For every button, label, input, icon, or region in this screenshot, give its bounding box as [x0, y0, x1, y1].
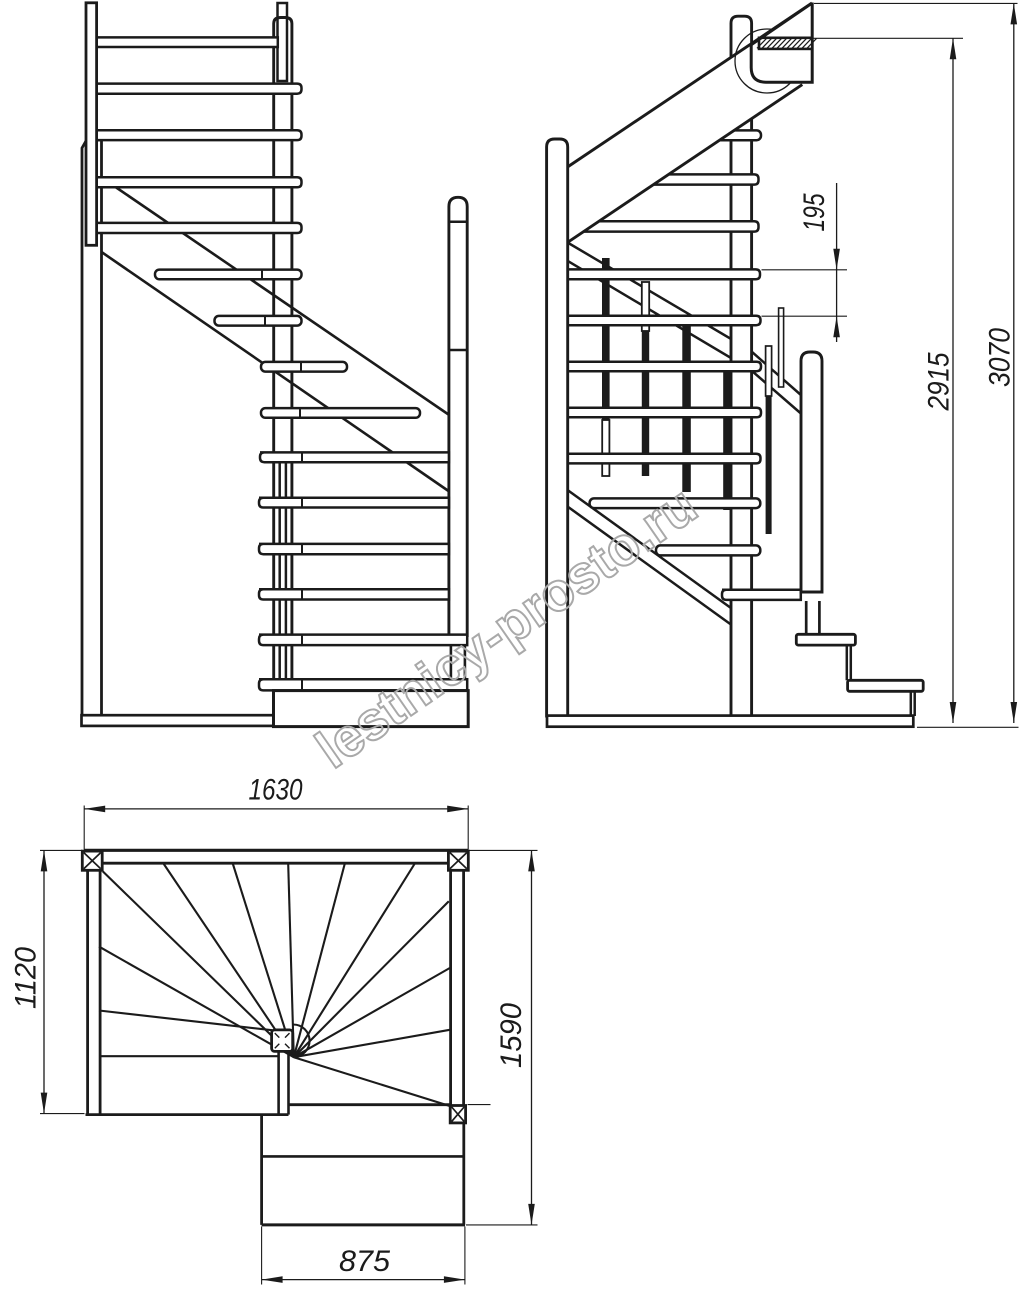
svg-text:1120: 1120 — [10, 947, 43, 1009]
svg-text:875: 875 — [339, 1245, 390, 1278]
svg-text:195: 195 — [798, 193, 831, 231]
svg-text:1590: 1590 — [495, 1003, 528, 1068]
svg-text:1630: 1630 — [249, 774, 303, 807]
svg-text:2915: 2915 — [923, 352, 956, 411]
svg-text:3070: 3070 — [984, 328, 1017, 387]
